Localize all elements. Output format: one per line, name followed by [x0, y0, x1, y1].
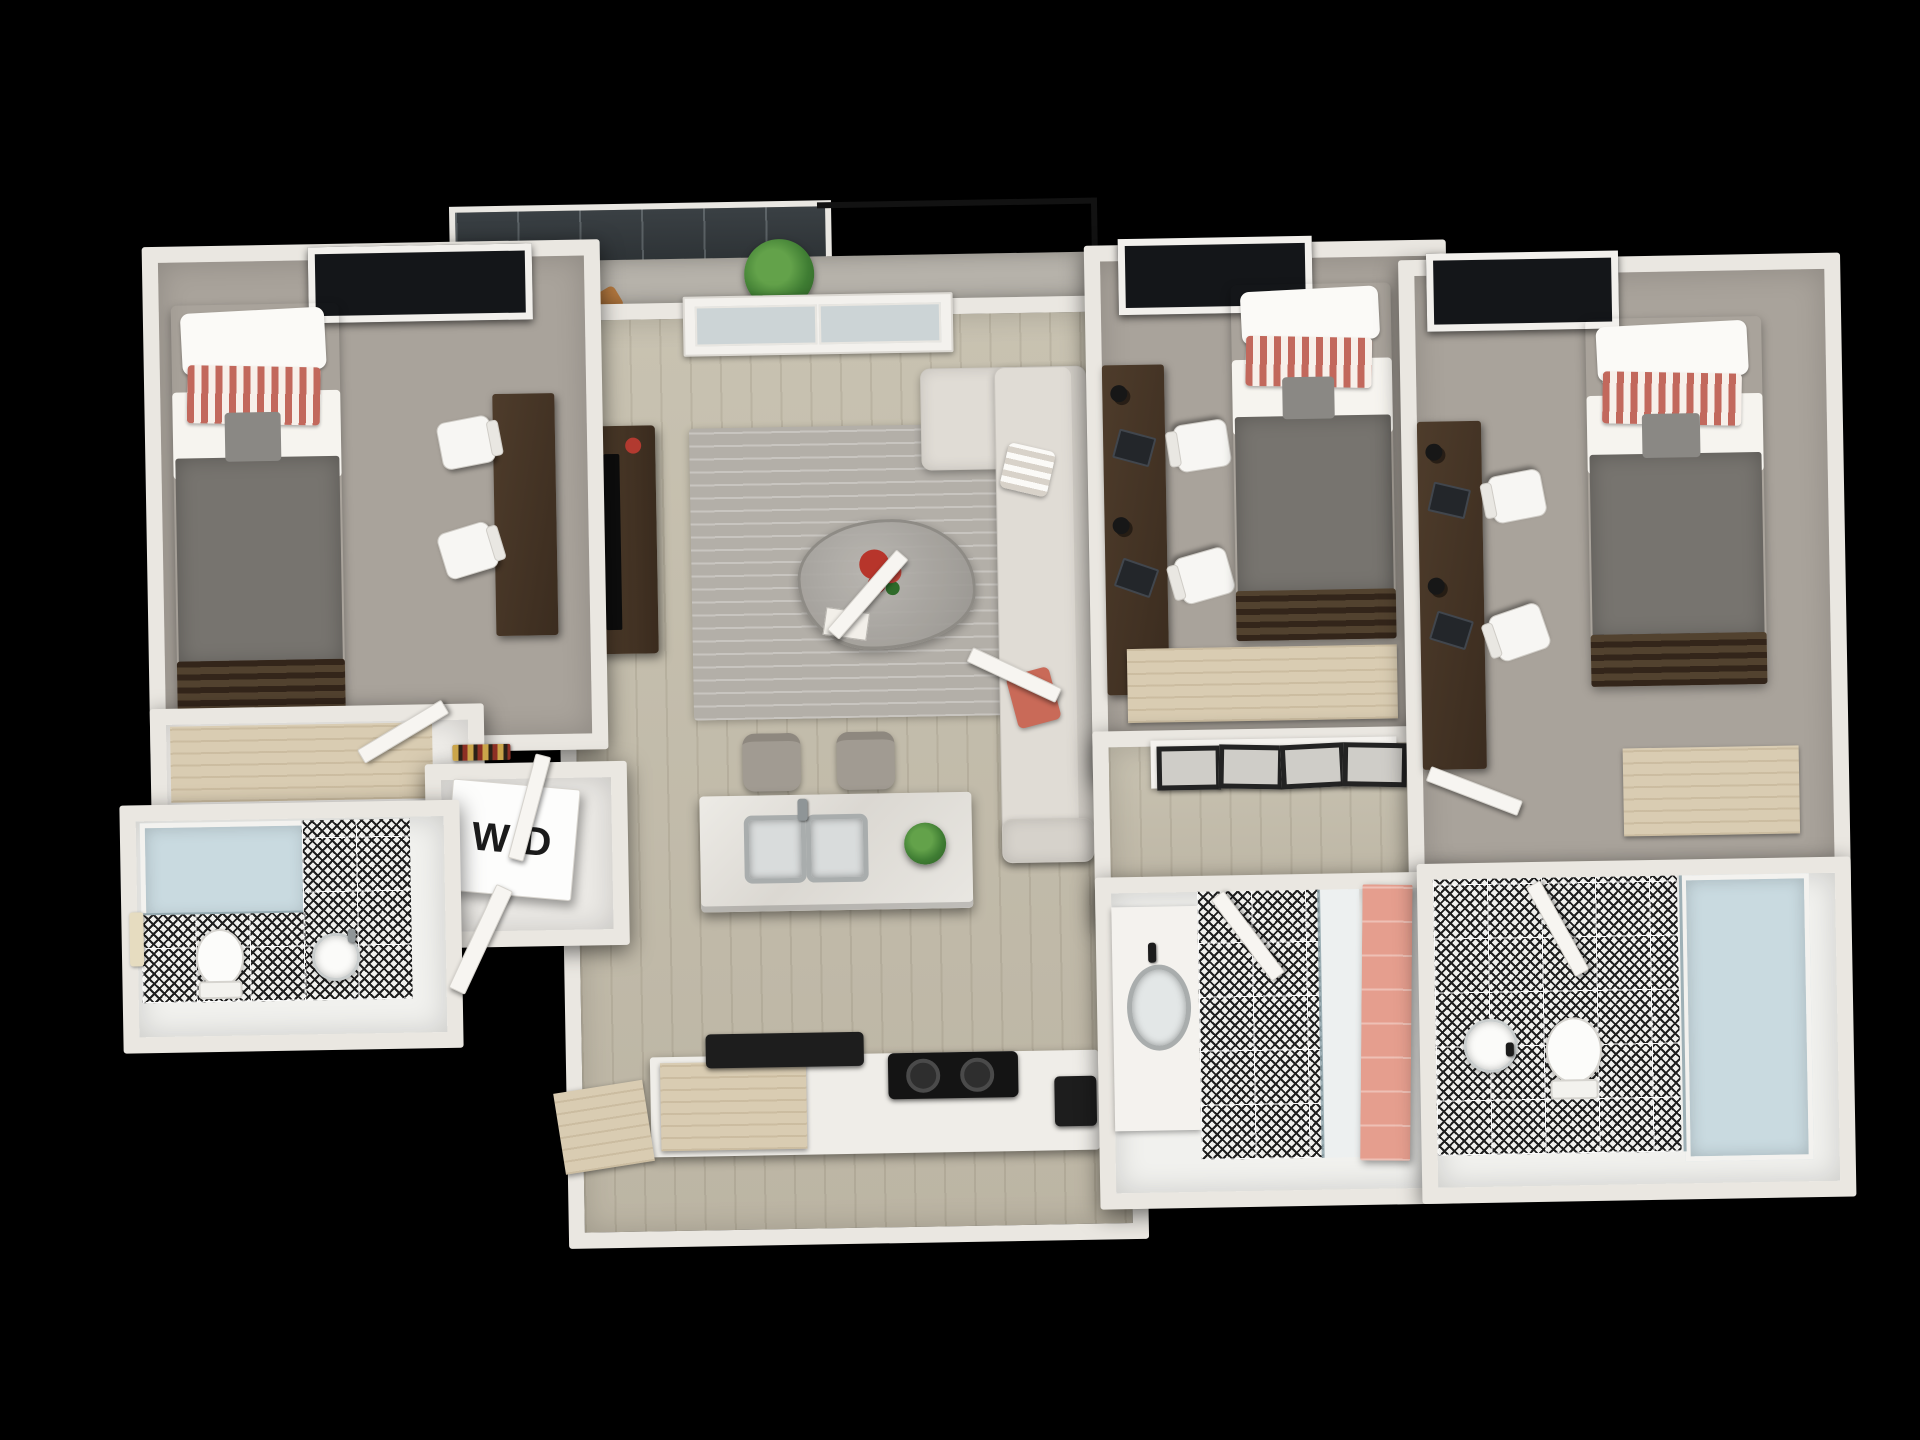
framed-art: [1156, 745, 1221, 790]
bedroom-1-bed: [171, 303, 346, 720]
decor-red-object: [625, 438, 641, 454]
bathroom-2-faucet: [1148, 943, 1156, 963]
bathroom-2-shower-floor: [1319, 889, 1364, 1158]
bedroom-2-desk: [1102, 364, 1170, 695]
bed-blanket: [1589, 452, 1765, 639]
kitchen-faucet: [797, 799, 807, 821]
sofa-main: [994, 366, 1095, 864]
bathroom-2-tile-floor: [1197, 890, 1324, 1160]
small-appliance: [1054, 1076, 1097, 1127]
bedroom-3-bed: [1585, 316, 1767, 687]
kitchen-sink-right: [806, 814, 869, 883]
bed-pillow-gray: [1282, 376, 1336, 420]
bathroom-3-shower: [1681, 873, 1814, 1161]
bedroom-1-window: [308, 243, 533, 323]
bed-blanket: [1234, 414, 1394, 595]
framed-art: [1280, 742, 1346, 789]
apartment-unit: W/D: [0, 0, 1920, 1440]
shelf-books: [452, 744, 510, 761]
door-glass-pane: [819, 302, 942, 344]
counter-stool: [836, 731, 895, 790]
counter-stool: [742, 733, 801, 792]
floorplan-render: W/D: [0, 0, 1920, 1440]
bed-blanket: [175, 456, 343, 666]
bedroom-2-bed: [1230, 282, 1396, 641]
framed-art: [1218, 744, 1283, 789]
desk-chair: [1486, 468, 1548, 525]
bedroom-3-closet-bench: [1623, 745, 1801, 836]
kitchen-sink-left: [744, 815, 807, 884]
toilet-tank: [198, 981, 242, 1000]
sofa-armrest: [1002, 818, 1095, 864]
bathroom-2-pink-accent-wall: [1360, 884, 1412, 1160]
door-glass-pane: [695, 304, 818, 346]
burner: [960, 1057, 995, 1092]
bathroom-1-shower: [140, 820, 312, 923]
bedroom-3-desk: [1417, 421, 1487, 770]
bed-frame: [1236, 589, 1397, 642]
bed-pillow-gray: [1641, 413, 1700, 458]
bathroom-1-faucet: [348, 929, 356, 943]
desk-chair: [435, 414, 497, 471]
balcony-french-doors: [683, 292, 954, 357]
burner: [906, 1058, 941, 1093]
entry-cabinet: [553, 1080, 655, 1175]
balcony-railing-top: [817, 198, 1097, 209]
toilet-tank: [1550, 1079, 1598, 1100]
desk-chair: [1172, 418, 1233, 474]
framed-art: [1342, 742, 1407, 787]
bed-pillow-gray: [225, 411, 281, 462]
bathroom-3-faucet: [1506, 1042, 1514, 1056]
tv-screen: [603, 454, 622, 630]
kitchen-cabinet-wood: [660, 1061, 808, 1152]
bedroom-2-closet-bench: [1127, 644, 1398, 723]
cooktop: [888, 1051, 1019, 1099]
bed-frame: [1591, 632, 1768, 687]
oven-front-panel: [705, 1032, 864, 1069]
towel-bar: [129, 912, 144, 966]
bedroom-1-desk: [492, 393, 558, 636]
